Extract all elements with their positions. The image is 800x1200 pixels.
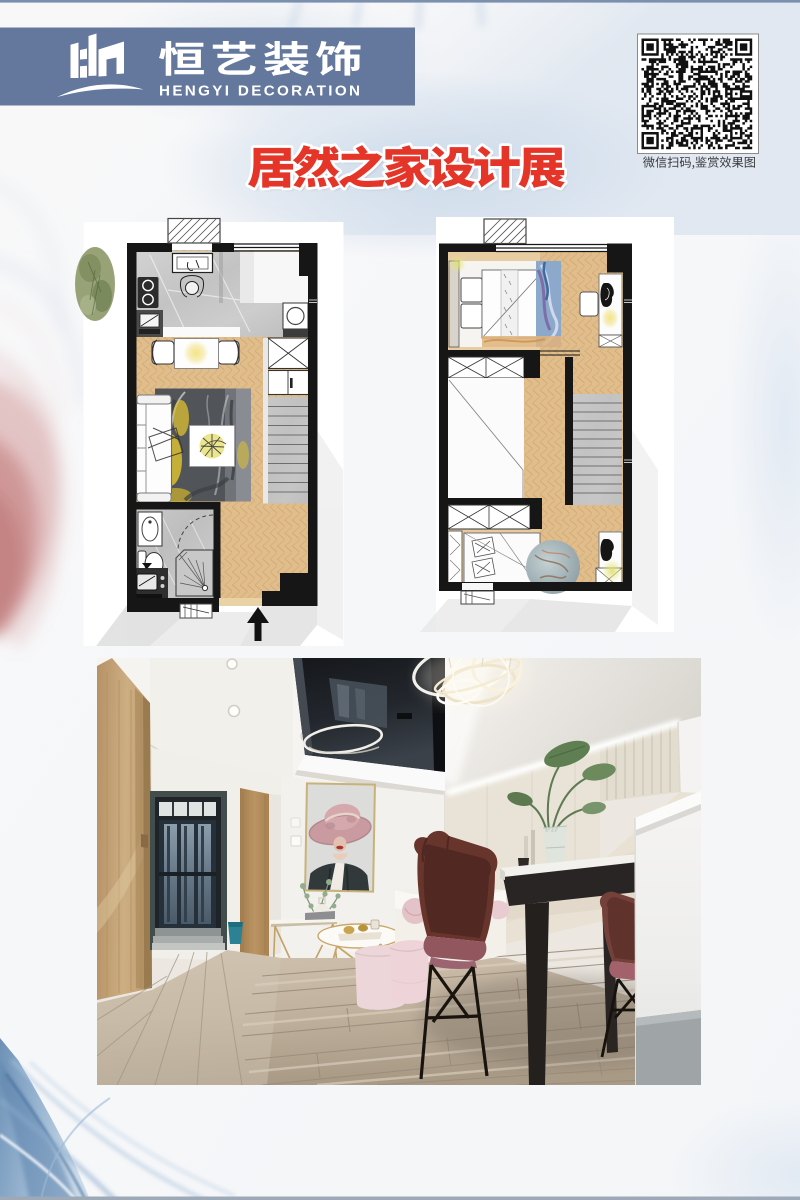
svg-text:HENGYI DECORATION: HENGYI DECORATION [159,83,362,100]
